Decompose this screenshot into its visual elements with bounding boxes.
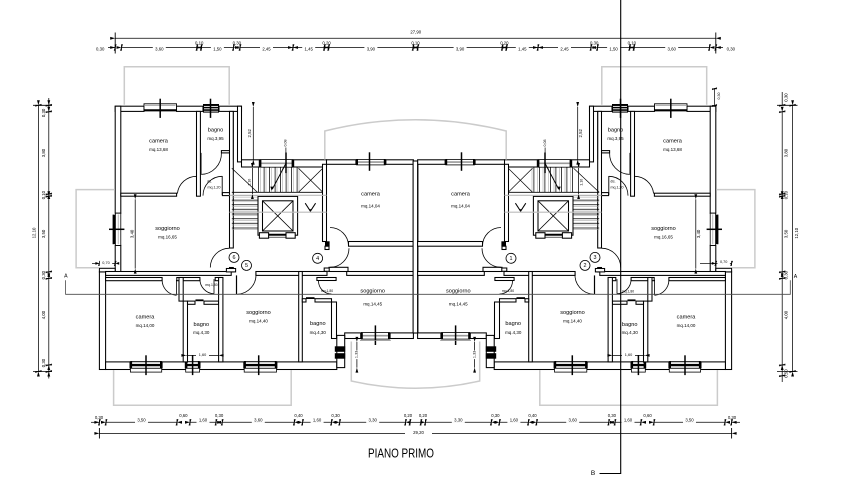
svg-text:camera: camera <box>663 138 683 144</box>
svg-text:bagno: bagno <box>505 321 521 327</box>
svg-text:0,30: 0,30 <box>95 415 104 420</box>
svg-text:A: A <box>794 274 798 280</box>
svg-text:3,60: 3,60 <box>155 47 164 52</box>
svg-text:0,20: 0,20 <box>404 413 413 418</box>
svg-text:5: 5 <box>245 263 248 269</box>
svg-text:soggiorno: soggiorno <box>360 288 385 294</box>
svg-text:0,30: 0,30 <box>41 270 46 279</box>
svg-text:0,30: 0,30 <box>215 413 224 418</box>
svg-text:4,00: 4,00 <box>784 310 789 319</box>
svg-text:mq.16,65: mq.16,65 <box>158 235 177 240</box>
svg-text:12,10: 12,10 <box>31 227 36 238</box>
svg-text:mq.14,00: mq.14,00 <box>677 323 696 328</box>
svg-text:3,60: 3,60 <box>569 417 578 422</box>
svg-text:6: 6 <box>233 255 236 261</box>
svg-text:27,90: 27,90 <box>410 29 421 34</box>
svg-text:0,30: 0,30 <box>41 108 46 117</box>
svg-text:0,60: 0,60 <box>643 413 652 418</box>
svg-text:0,40: 0,40 <box>294 413 303 418</box>
svg-text:3,90: 3,90 <box>456 47 465 52</box>
svg-text:soggiorno: soggiorno <box>155 226 180 232</box>
svg-text:0,20: 0,20 <box>322 41 331 46</box>
svg-text:0,08: 0,08 <box>284 140 288 147</box>
svg-text:0,30: 0,30 <box>491 413 500 418</box>
svg-text:3,50: 3,50 <box>137 417 146 422</box>
svg-text:camera: camera <box>677 314 697 320</box>
svg-text:bagno: bagno <box>310 321 326 327</box>
svg-text:mq.4,30: mq.4,30 <box>505 330 522 335</box>
svg-text:3,50: 3,50 <box>41 229 46 238</box>
svg-text:3,30: 3,30 <box>369 417 378 422</box>
svg-text:camera: camera <box>451 191 471 197</box>
svg-text:2: 2 <box>584 263 587 269</box>
svg-text:1,60: 1,60 <box>199 417 208 422</box>
svg-text:0,10: 0,10 <box>628 41 637 46</box>
svg-text:soggiorno: soggiorno <box>246 310 271 316</box>
svg-text:1,33: 1,33 <box>472 351 476 358</box>
svg-text:mq.14,40: mq.14,40 <box>563 319 582 324</box>
svg-text:3,50: 3,50 <box>784 229 789 238</box>
svg-text:bagno: bagno <box>208 127 224 133</box>
svg-text:mq.14,45: mq.14,45 <box>363 302 382 307</box>
svg-text:mq.14,45: mq.14,45 <box>449 302 468 307</box>
svg-text:3,80: 3,80 <box>784 148 789 157</box>
svg-text:3: 3 <box>594 255 597 261</box>
svg-text:1,45: 1,45 <box>518 47 527 52</box>
svg-text:mq.4,30: mq.4,30 <box>622 330 639 335</box>
svg-text:1,10: 1,10 <box>248 179 252 186</box>
svg-text:1,33: 1,33 <box>355 351 359 358</box>
svg-text:0,10: 0,10 <box>411 41 420 46</box>
svg-text:0,10: 0,10 <box>195 41 204 46</box>
svg-text:bagno: bagno <box>622 322 638 328</box>
svg-text:1: 1 <box>510 256 513 262</box>
svg-text:mq.3,95: mq.3,95 <box>207 136 224 141</box>
svg-text:2,45: 2,45 <box>560 47 569 52</box>
svg-text:mq.13,68: mq.13,68 <box>663 147 682 152</box>
svg-text:2,45: 2,45 <box>262 47 271 52</box>
svg-text:3,30: 3,30 <box>454 417 463 422</box>
svg-text:1,60: 1,60 <box>510 417 519 422</box>
svg-text:1,50: 1,50 <box>609 47 618 52</box>
svg-text:mq.1,20: mq.1,20 <box>611 185 624 189</box>
svg-text:camera: camera <box>136 314 156 320</box>
svg-text:0,60: 0,60 <box>179 413 188 418</box>
svg-text:1,60: 1,60 <box>624 417 633 422</box>
svg-text:0,20: 0,20 <box>500 41 509 46</box>
svg-text:0,40: 0,40 <box>528 413 537 418</box>
svg-text:B: B <box>591 470 595 477</box>
svg-text:1,50: 1,50 <box>213 47 222 52</box>
svg-text:1,45: 1,45 <box>305 47 314 52</box>
svg-text:soggiorno: soggiorno <box>560 310 585 316</box>
svg-text:12,10: 12,10 <box>794 227 799 238</box>
svg-text:camera: camera <box>149 138 169 144</box>
svg-text:0,30: 0,30 <box>331 413 340 418</box>
svg-text:29,20: 29,20 <box>413 430 424 435</box>
svg-text:0,30: 0,30 <box>727 47 736 52</box>
svg-text:0,70: 0,70 <box>720 260 727 264</box>
svg-text:0,30: 0,30 <box>233 41 242 46</box>
svg-text:camera: camera <box>361 191 381 197</box>
svg-text:soggiorno: soggiorno <box>651 226 676 232</box>
svg-text:0,30: 0,30 <box>728 415 737 420</box>
svg-text:0,20: 0,20 <box>419 413 428 418</box>
svg-text:3,40: 3,40 <box>129 229 134 238</box>
svg-text:1,60: 1,60 <box>625 353 632 357</box>
svg-text:1,60: 1,60 <box>313 417 322 422</box>
svg-text:mq.14,04: mq.14,04 <box>451 204 470 209</box>
svg-text:0,30: 0,30 <box>96 47 105 52</box>
svg-text:mq.13,68: mq.13,68 <box>149 147 168 152</box>
svg-text:mq.1,80: mq.1,80 <box>321 289 333 293</box>
svg-text:soggiorno: soggiorno <box>446 288 471 294</box>
svg-text:dis.: dis. <box>207 180 212 184</box>
svg-text:mq.14,40: mq.14,40 <box>249 319 268 324</box>
svg-text:3,60: 3,60 <box>254 417 263 422</box>
svg-text:mq.1,80: mq.1,80 <box>622 289 634 293</box>
svg-text:0,10: 0,10 <box>784 190 789 199</box>
svg-text:0,30: 0,30 <box>590 41 599 46</box>
svg-text:2,52: 2,52 <box>247 129 252 138</box>
svg-text:2,52: 2,52 <box>578 129 583 138</box>
svg-text:mq.14,04: mq.14,04 <box>361 204 380 209</box>
svg-text:mq.1,20: mq.1,20 <box>208 185 221 189</box>
svg-text:0,10: 0,10 <box>41 190 46 199</box>
svg-text:0,08: 0,08 <box>543 140 547 147</box>
svg-text:0,30: 0,30 <box>717 93 721 100</box>
svg-text:mq.14,00: mq.14,00 <box>136 323 155 328</box>
svg-text:3,90: 3,90 <box>367 47 376 52</box>
svg-text:mq.4,30: mq.4,30 <box>310 330 327 335</box>
svg-text:3,80: 3,80 <box>41 148 46 157</box>
svg-text:mq.1,80: mq.1,80 <box>502 289 514 293</box>
svg-text:A: A <box>64 274 68 280</box>
svg-text:4,00: 4,00 <box>41 310 46 319</box>
svg-text:0,70: 0,70 <box>102 261 109 265</box>
svg-text:0,30: 0,30 <box>784 270 789 279</box>
svg-text:PIANO PRIMO: PIANO PRIMO <box>368 446 434 460</box>
svg-text:3,60: 3,60 <box>668 47 677 52</box>
svg-text:1,10: 1,10 <box>579 179 583 186</box>
svg-text:1,60: 1,60 <box>199 353 206 357</box>
svg-text:3,50: 3,50 <box>685 417 694 422</box>
svg-text:0,30: 0,30 <box>784 93 789 102</box>
svg-text:dis.: dis. <box>611 180 616 184</box>
svg-text:0,30: 0,30 <box>41 358 46 367</box>
svg-text:mq.16,65: mq.16,65 <box>654 235 673 240</box>
svg-text:3,40: 3,40 <box>696 229 701 238</box>
svg-text:4: 4 <box>316 256 319 262</box>
svg-text:mq.3,95: mq.3,95 <box>607 136 624 141</box>
svg-text:bagno: bagno <box>194 322 210 328</box>
svg-text:mq.4,30: mq.4,30 <box>193 330 210 335</box>
svg-text:mq.1,80: mq.1,80 <box>205 283 217 287</box>
svg-text:0,50: 0,50 <box>784 369 789 378</box>
svg-text:0,30: 0,30 <box>608 413 617 418</box>
